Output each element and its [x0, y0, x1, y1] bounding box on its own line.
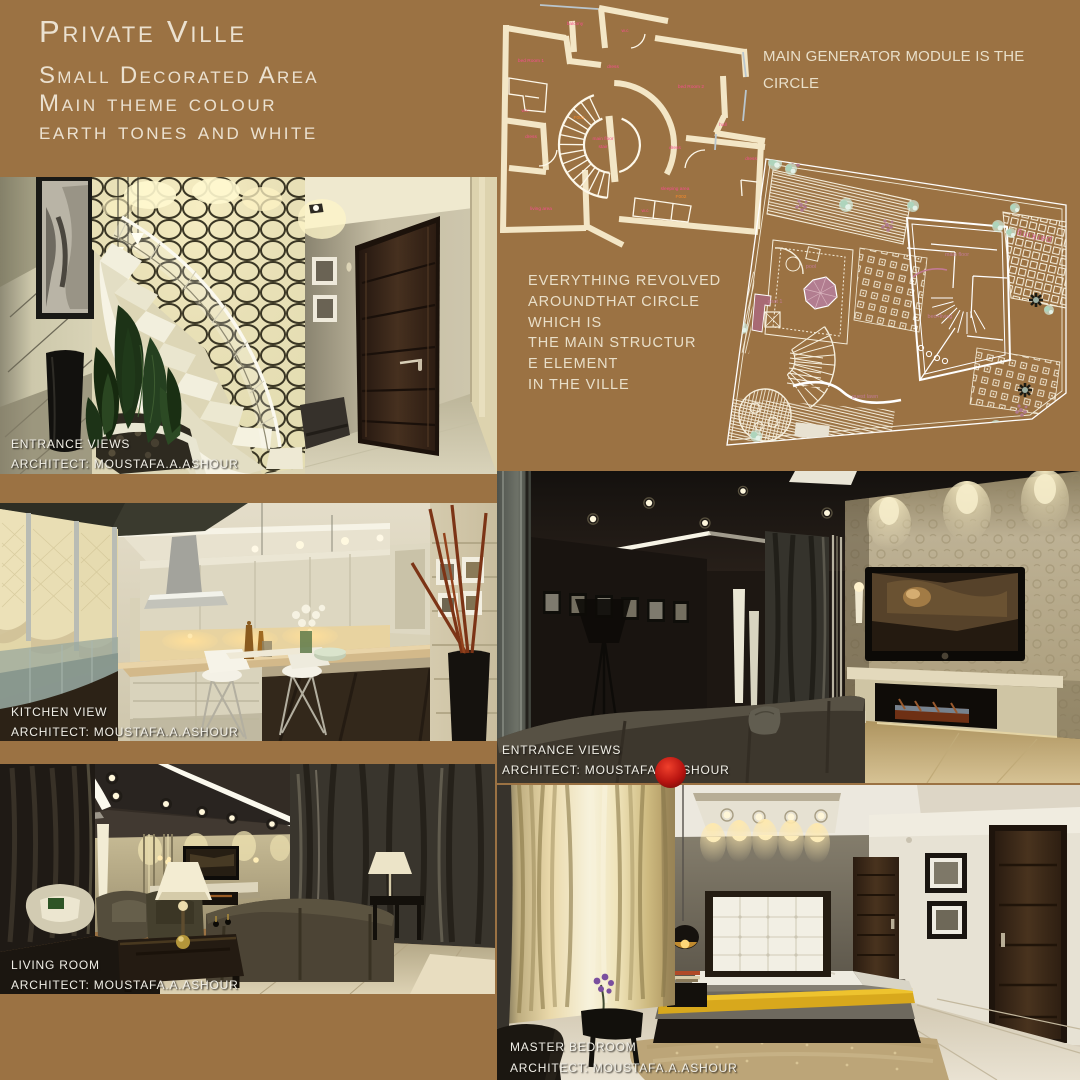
- svg-text:bed Room 2: bed Room 2: [678, 84, 704, 90]
- svg-text:ARCHITECT: MOUSTAFA.A.ASHOUR: ARCHITECT: MOUSTAFA.A.ASHOUR: [11, 457, 239, 471]
- svg-text:bed Room 1: bed Room 1: [518, 58, 544, 64]
- svg-text:w.c: w.c: [522, 109, 530, 114]
- svg-text:F002: F002: [676, 194, 687, 200]
- svg-text:hall: hall: [719, 122, 726, 128]
- svg-text:dress: dress: [669, 145, 681, 151]
- svg-text:bed+living: bed+living: [928, 314, 953, 320]
- svg-text:ENTRANCE VIEWS: ENTRANCE VIEWS: [11, 437, 130, 451]
- svg-text:dress: dress: [525, 134, 537, 140]
- svg-text:ARCHITECT: MOUSTAFA.A.ASHOUR: ARCHITECT: MOUSTAFA.A.ASHOUR: [11, 725, 239, 739]
- svg-text:ARCHITECT: MOUSTAFA.A.ASHOUR: ARCHITECT: MOUSTAFA.A.ASHOUR: [11, 978, 239, 992]
- svg-text:stair: stair: [598, 144, 607, 150]
- svg-text:ARCHITECT: MOUSTAFA.A.ASHOUR: ARCHITECT: MOUSTAFA.A.ASHOUR: [502, 763, 730, 777]
- svg-text:living area: living area: [530, 206, 552, 212]
- svg-text:pool: pool: [806, 264, 816, 270]
- svg-text:ENTRANCE VIEWS: ENTRANCE VIEWS: [502, 743, 621, 757]
- svg-text:balcony: balcony: [567, 21, 584, 27]
- svg-text:LIVING ROOM: LIVING ROOM: [11, 958, 100, 972]
- svg-text:dress: dress: [607, 64, 619, 70]
- svg-text:seat 1: seat 1: [768, 299, 783, 305]
- svg-text:ARCHITECT: MOUSTAFA.A.ASHOUR: ARCHITECT: MOUSTAFA.A.ASHOUR: [510, 1061, 738, 1075]
- svg-text:main floor: main floor: [945, 252, 969, 258]
- svg-text:w.c: w.c: [622, 29, 630, 34]
- svg-text:guest lawn: guest lawn: [852, 394, 878, 400]
- svg-text:F002: F002: [574, 115, 585, 121]
- svg-text:sleeping area: sleeping area: [661, 186, 690, 192]
- svg-text:KITCHEN VIEW: KITCHEN VIEW: [11, 705, 107, 719]
- svg-text:MASTER BEDROOM: MASTER BEDROOM: [510, 1040, 637, 1054]
- svg-text:main floor: main floor: [592, 136, 613, 142]
- svg-text:w.c: w.c: [642, 209, 650, 214]
